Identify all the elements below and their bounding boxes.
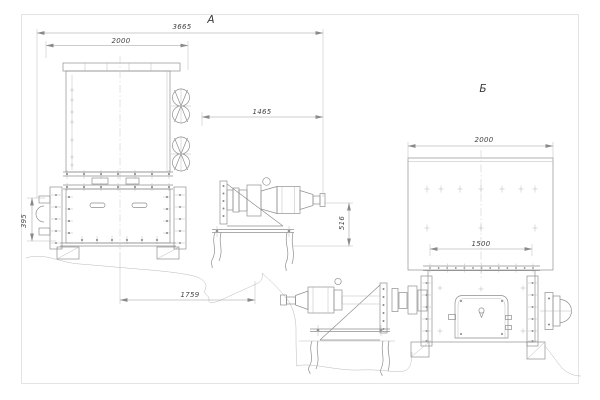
dim-base-length-a: 1759 — [168, 291, 212, 299]
view-a-body — [57, 185, 179, 259]
dim-hopper-width-b: 2000 — [462, 136, 506, 144]
dim-overall-width-a: 3665 — [160, 23, 204, 31]
view-a-flange — [63, 170, 173, 191]
view-b-flange — [423, 264, 540, 273]
dim-side-height-a: 395 — [20, 206, 28, 236]
technical-drawing-canvas — [0, 0, 600, 400]
view-b-dimensions — [408, 142, 553, 256]
view-b-ground-line — [296, 346, 581, 376]
drawing-sheet: А 3665 2000 1465 395 1759 516 Б 2000 150… — [0, 0, 600, 400]
view-a-vibrator-icon-2 — [171, 136, 191, 172]
view-b-body — [411, 271, 545, 360]
view-a-hopper — [63, 56, 180, 182]
dim-hopper-width-a: 2000 — [99, 37, 143, 45]
view-b-hopper — [408, 150, 553, 280]
view-a-dimensions — [27, 29, 353, 304]
view-a-drive — [211, 178, 325, 271]
dim-flange-span-b: 1500 — [459, 240, 503, 248]
view-b-access-door — [449, 296, 512, 339]
dim-drive-offset-a: 1465 — [240, 108, 284, 116]
view-b-label: Б — [472, 83, 494, 95]
view-b-drive — [281, 278, 428, 376]
view-a-vibrator-icon — [171, 88, 191, 124]
view-a-ground-line — [26, 256, 297, 366]
dim-drive-axis-height-a: 516 — [338, 208, 346, 238]
view-b-bearing — [540, 293, 572, 330]
